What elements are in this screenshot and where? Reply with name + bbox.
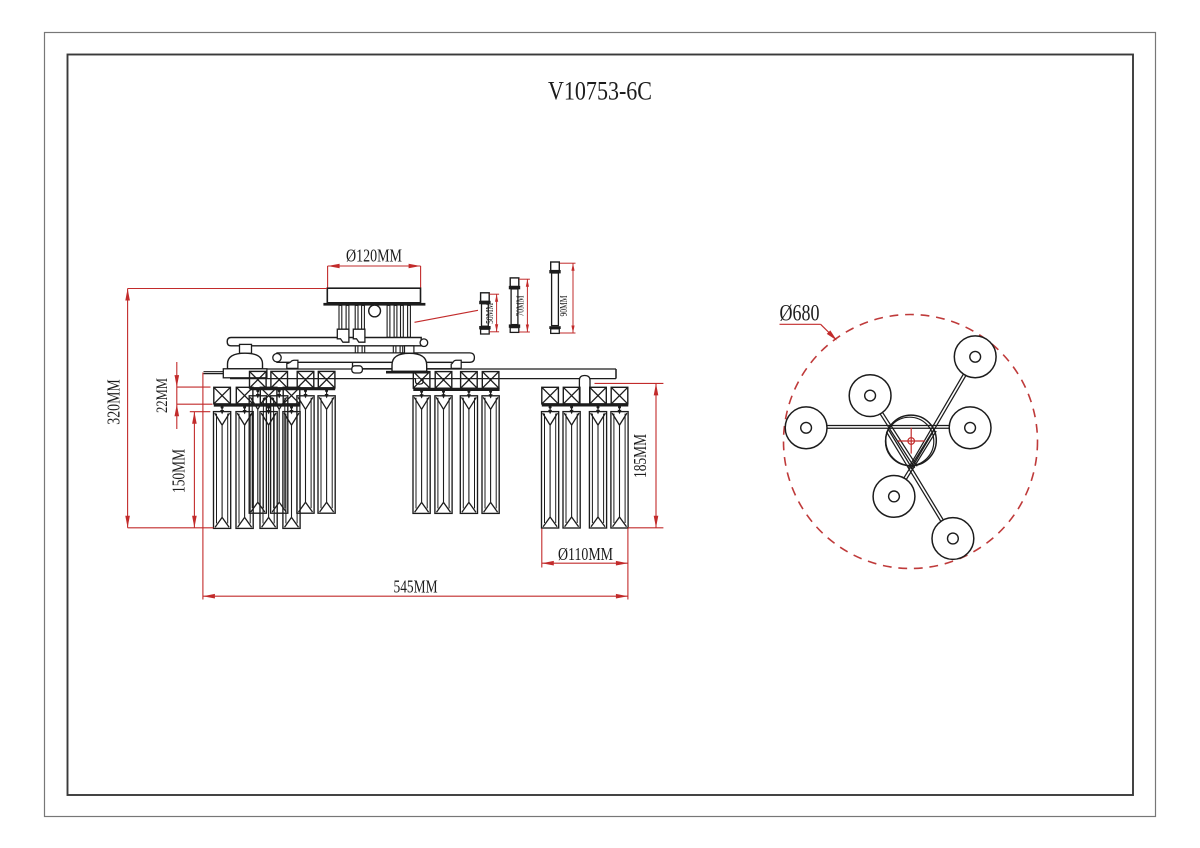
svg-text:Ø110MM: Ø110MM (558, 544, 613, 564)
svg-text:50MM: 50MM (485, 302, 496, 323)
svg-text:90MM: 90MM (559, 295, 570, 316)
svg-text:545MM: 545MM (394, 576, 438, 596)
svg-text:150MM: 150MM (169, 449, 189, 493)
svg-text:320MM: 320MM (103, 379, 123, 425)
svg-text:70MM: 70MM (515, 295, 526, 316)
svg-text:V10753-6C: V10753-6C (548, 76, 652, 106)
svg-text:Ø680: Ø680 (780, 301, 820, 326)
svg-text:Ø120MM: Ø120MM (346, 246, 402, 266)
svg-text:22MM: 22MM (154, 378, 171, 413)
svg-text:185MM: 185MM (630, 434, 650, 478)
